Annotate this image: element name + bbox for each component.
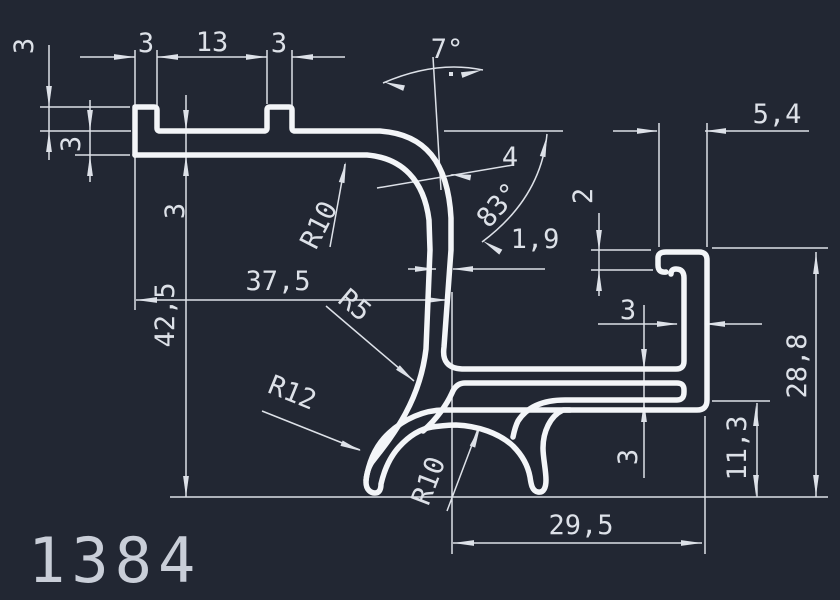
arrowhead	[637, 128, 658, 134]
arrowhead	[183, 110, 189, 131]
dim-bottom-width: 29,5	[548, 510, 613, 541]
dim-fillet-radius: R5	[332, 283, 377, 328]
arrowhead	[540, 135, 550, 157]
arrowhead	[87, 155, 93, 176]
profile-number: 1384	[28, 524, 201, 597]
dim-wall-top-thickness: 4	[502, 142, 518, 173]
dim-lip-depth: 2	[568, 188, 599, 204]
arrowhead	[415, 266, 436, 272]
dim-overall-height: 42,5	[150, 282, 181, 347]
arrowhead	[705, 128, 726, 134]
arrowhead	[813, 253, 819, 274]
arrowhead	[452, 266, 473, 272]
arrowhead	[596, 270, 602, 291]
arrowhead	[339, 161, 349, 183]
dim-tab-gap: 13	[196, 27, 229, 58]
profile-top-contour	[135, 107, 684, 369]
arrowhead	[46, 86, 52, 107]
arrowhead	[753, 475, 759, 496]
arrowhead	[813, 475, 819, 496]
dim-hook-wall: 3	[620, 295, 636, 326]
arrowhead	[87, 110, 93, 131]
arrowhead	[183, 155, 189, 176]
dim-notch-depth: 3	[160, 203, 191, 219]
arrowhead	[753, 405, 759, 426]
dim-right-height: 28,8	[782, 333, 813, 398]
dim-tilt-angle: 7°	[431, 34, 464, 65]
profile-arch-outer	[366, 410, 570, 480]
dim-shelf-gap: 3	[613, 449, 644, 465]
dimension-labels: 3 13 3 3 3 3 42,5 37,5 R10 7° 4 83° 1,9 …	[9, 27, 813, 541]
arrowhead	[596, 230, 602, 251]
arrowhead	[681, 540, 702, 546]
dim-leg-height: 11,3	[722, 415, 753, 480]
dim-top-width: 37,5	[245, 266, 310, 297]
arrowhead	[340, 440, 362, 453]
dim-hook-width: 5,4	[753, 99, 802, 130]
arrowhead	[46, 131, 52, 152]
arrowhead	[657, 321, 678, 327]
arrowhead	[183, 476, 189, 497]
dim-tab-height: 3	[9, 38, 40, 54]
dim-wall-thickness: 1,9	[511, 224, 560, 255]
cad-drawing: 3 13 3 3 3 3 42,5 37,5 R10 7° 4 83° 1,9 …	[0, 0, 840, 600]
cad-viewport: 3 13 3 3 3 3 42,5 37,5 R10 7° 4 83° 1,9 …	[0, 0, 840, 600]
dim-tab1-width: 3	[138, 28, 154, 59]
arrowhead	[453, 540, 474, 546]
arrowhead	[292, 54, 313, 60]
dim-arch-radius: R10	[406, 453, 452, 510]
arrowhead	[246, 54, 267, 60]
dim-tab2-width: 3	[271, 28, 287, 59]
dim-flange-thickness: 3	[56, 136, 87, 152]
angle-vertex-dot	[449, 72, 453, 76]
dim-leg-radius: R12	[264, 370, 321, 417]
arrowhead	[157, 54, 178, 60]
arrowhead	[114, 54, 135, 60]
